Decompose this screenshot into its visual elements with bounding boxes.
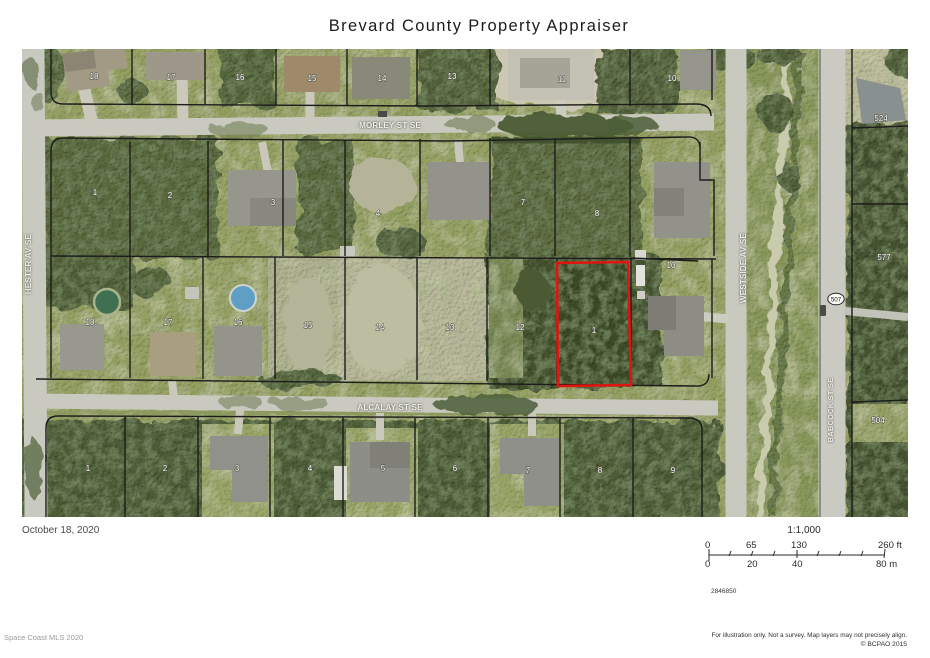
svg-text:3: 3 [235, 464, 240, 473]
svg-text:507: 507 [831, 297, 842, 304]
svg-text:20: 20 [747, 559, 758, 570]
svg-text:Brevard County Property Apprai: Brevard County Property Appraiser [329, 17, 629, 35]
svg-text:MORLEY ST SE: MORLEY ST SE [359, 121, 421, 130]
svg-text:17: 17 [167, 73, 176, 82]
svg-text:For illustration only. Not a s: For illustration only. Not a survey. Map… [712, 632, 908, 639]
svg-text:1: 1 [93, 188, 98, 197]
svg-text:BABCOCK ST SE: BABCOCK ST SE [826, 378, 835, 443]
svg-text:HESTER AV SE: HESTER AV SE [24, 233, 33, 294]
svg-text:0: 0 [705, 540, 710, 551]
svg-text:14: 14 [376, 323, 385, 332]
svg-text:11: 11 [558, 75, 567, 84]
svg-text:WESTSIDE AV SE: WESTSIDE AV SE [739, 233, 748, 303]
svg-text:2846850: 2846850 [711, 588, 737, 595]
svg-text:ALCALAY ST SE: ALCALAY ST SE [357, 403, 423, 412]
svg-text:14: 14 [378, 74, 387, 83]
svg-text:Space Coast MLS 2020: Space Coast MLS 2020 [4, 633, 83, 642]
svg-text:© BCPAO 2015: © BCPAO 2015 [861, 640, 908, 648]
svg-text:65: 65 [746, 540, 757, 551]
svg-text:3: 3 [271, 198, 276, 207]
svg-text:1: 1 [592, 326, 597, 335]
svg-text:7: 7 [521, 198, 526, 207]
svg-text:13: 13 [446, 323, 455, 332]
svg-text:15: 15 [308, 74, 317, 83]
svg-text:18: 18 [90, 72, 99, 81]
svg-text:4: 4 [376, 209, 381, 218]
svg-text:80 m: 80 m [876, 559, 897, 570]
svg-text:1:1,000: 1:1,000 [787, 525, 821, 536]
svg-text:13: 13 [448, 72, 457, 81]
svg-text:10: 10 [667, 261, 676, 270]
svg-text:130: 130 [791, 540, 807, 551]
svg-text:260 ft: 260 ft [878, 540, 902, 551]
svg-text:0: 0 [705, 559, 710, 570]
svg-text:40: 40 [792, 559, 803, 570]
svg-text:15: 15 [304, 321, 313, 330]
svg-text:16: 16 [234, 318, 243, 327]
svg-text:18: 18 [86, 318, 95, 327]
svg-text:8: 8 [598, 466, 603, 475]
svg-text:10: 10 [668, 74, 677, 83]
svg-text:1: 1 [86, 464, 91, 473]
svg-text:16: 16 [236, 73, 245, 82]
svg-text:12: 12 [516, 323, 525, 332]
svg-text:5: 5 [381, 464, 386, 473]
svg-text:October 18, 2020: October 18, 2020 [22, 525, 100, 536]
svg-text:6: 6 [453, 464, 458, 473]
svg-text:2: 2 [163, 464, 168, 473]
svg-text:577: 577 [877, 253, 891, 262]
svg-text:4: 4 [308, 464, 313, 473]
svg-text:9: 9 [671, 466, 676, 475]
svg-text:17: 17 [164, 318, 173, 327]
svg-text:504: 504 [871, 416, 885, 425]
svg-text:524: 524 [874, 114, 888, 123]
svg-text:7: 7 [526, 466, 531, 475]
svg-text:2: 2 [168, 191, 173, 200]
svg-text:8: 8 [595, 209, 600, 218]
